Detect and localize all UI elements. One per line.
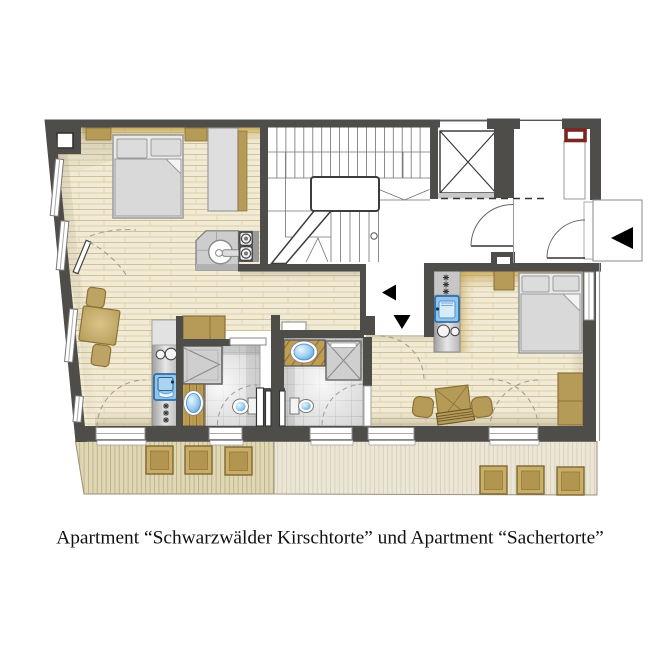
svg-text:Apartment “Schwarzwälder Kirsc: Apartment “Schwarzwälder Kirschtorte” un…	[56, 528, 604, 549]
